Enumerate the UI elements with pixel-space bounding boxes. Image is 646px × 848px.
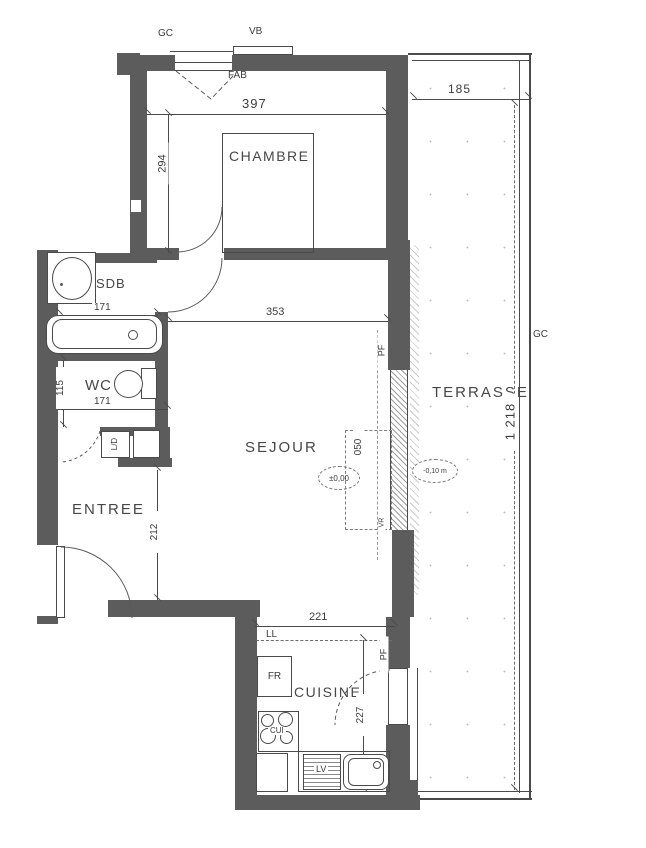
wall-cuisine-left	[235, 617, 257, 803]
dim-label-171-wc: 171	[92, 397, 113, 407]
wall-niche	[131, 200, 141, 212]
kitchen-cabinet	[256, 753, 288, 792]
window-gc-mid	[175, 62, 232, 63]
room-label-wc: WC	[85, 378, 112, 393]
wall-top-right	[232, 55, 408, 71]
dim-label-212: 212	[150, 511, 160, 553]
dim-label-353: 353	[264, 307, 286, 318]
label-cui: CUI	[268, 727, 286, 735]
wall-cuisine-right-corner	[386, 780, 418, 800]
window-vb-box	[233, 46, 293, 55]
washbasin	[52, 257, 92, 300]
terrasse-top-edge	[408, 53, 532, 55]
dim-line-353	[168, 321, 388, 322]
terrasse-right-edge	[529, 53, 531, 800]
level-marker-sejour: ±0,00	[318, 466, 360, 490]
terrasse-edge-hatch	[410, 245, 419, 595]
window-sejour-bay	[390, 370, 408, 530]
dim-label-050: 050	[354, 426, 364, 468]
room-label-entree: ENTREE	[72, 502, 145, 517]
room-label-sejour: SEJOUR	[245, 440, 318, 455]
dim-label-171-sdb: 171	[92, 303, 113, 313]
wall-sejour-right-upper	[388, 240, 410, 370]
level-terrasse-value: -0,10 m	[423, 468, 447, 475]
terrasse-left-edge	[417, 668, 418, 792]
terrasse-bottom-inner-edge	[415, 791, 532, 792]
dim-label-397: 397	[240, 97, 269, 110]
wall-entree-bottom	[108, 600, 260, 617]
window-cuisine-pf	[388, 668, 408, 725]
stove-burner	[278, 712, 293, 727]
label-vb: VB	[249, 27, 262, 37]
cuisine-open-boundary	[256, 640, 392, 641]
terrasse-bottom-edge	[412, 798, 532, 800]
closet-box	[133, 430, 160, 458]
sdb-door-arc	[168, 258, 222, 312]
bathtub-drain	[128, 330, 138, 340]
sink-drain	[373, 761, 381, 769]
wall-chambre-left	[130, 71, 147, 260]
room-label-chambre: CHAMBRE	[229, 149, 310, 163]
fridge-label: FR	[268, 671, 281, 682]
entry-door-leaf	[56, 546, 65, 618]
wall-top-left	[138, 55, 175, 71]
dim-line-397	[147, 114, 387, 115]
label-lv: LV	[314, 765, 328, 774]
room-label-sdb: SDB	[96, 277, 126, 290]
label-ll: LL	[266, 630, 277, 640]
label-gc-right: GC	[533, 330, 548, 340]
label-pf-cuisine: PF	[380, 637, 389, 673]
level-marker-terrasse: -0,10 m	[412, 459, 458, 483]
wall-closet-bottom	[118, 458, 172, 467]
window-gc-inner	[175, 70, 232, 71]
bathtub-inner	[52, 319, 157, 349]
wall-left-stub	[37, 616, 58, 624]
dim-label-227: 227	[356, 694, 366, 736]
room-label-cuisine: CUISINE	[294, 685, 361, 699]
terrasse-right-inner-edge	[519, 60, 520, 793]
floor-plan: FR ±0,00 -0,10 m CHAMBRE SDB WC ENTREE S…	[0, 0, 646, 848]
dim-label-294: 294	[158, 143, 169, 185]
fridge: FR	[257, 656, 292, 697]
dim-line-171-wc	[58, 409, 168, 410]
toilet-tank	[141, 368, 157, 399]
dim-label-221: 221	[307, 612, 329, 623]
label-closet-ld: L/D	[111, 424, 119, 464]
window-gc-sill	[170, 51, 237, 52]
washbasin-drain	[60, 283, 63, 286]
label-fab: FAB	[228, 71, 247, 81]
dim-line-221	[255, 626, 395, 627]
door-swings-overlay	[0, 0, 646, 848]
wall-chambre-right	[386, 55, 408, 260]
toilet-bowl	[114, 370, 143, 398]
dim-label-1218: 1 218	[504, 394, 517, 450]
level-sejour-value: ±0,00	[329, 474, 349, 483]
fab-window-swing	[176, 71, 233, 99]
label-gc-top: GC	[158, 29, 173, 39]
dim-label-185: 185	[446, 83, 473, 95]
dim-label-115: 115	[56, 367, 66, 409]
chambre-door-arc	[177, 207, 222, 252]
label-vr: VR	[379, 508, 386, 538]
wc-door-swing	[62, 431, 100, 462]
terrasse-top-inner-edge	[412, 60, 530, 61]
label-pf-sejour: PF	[378, 333, 387, 369]
